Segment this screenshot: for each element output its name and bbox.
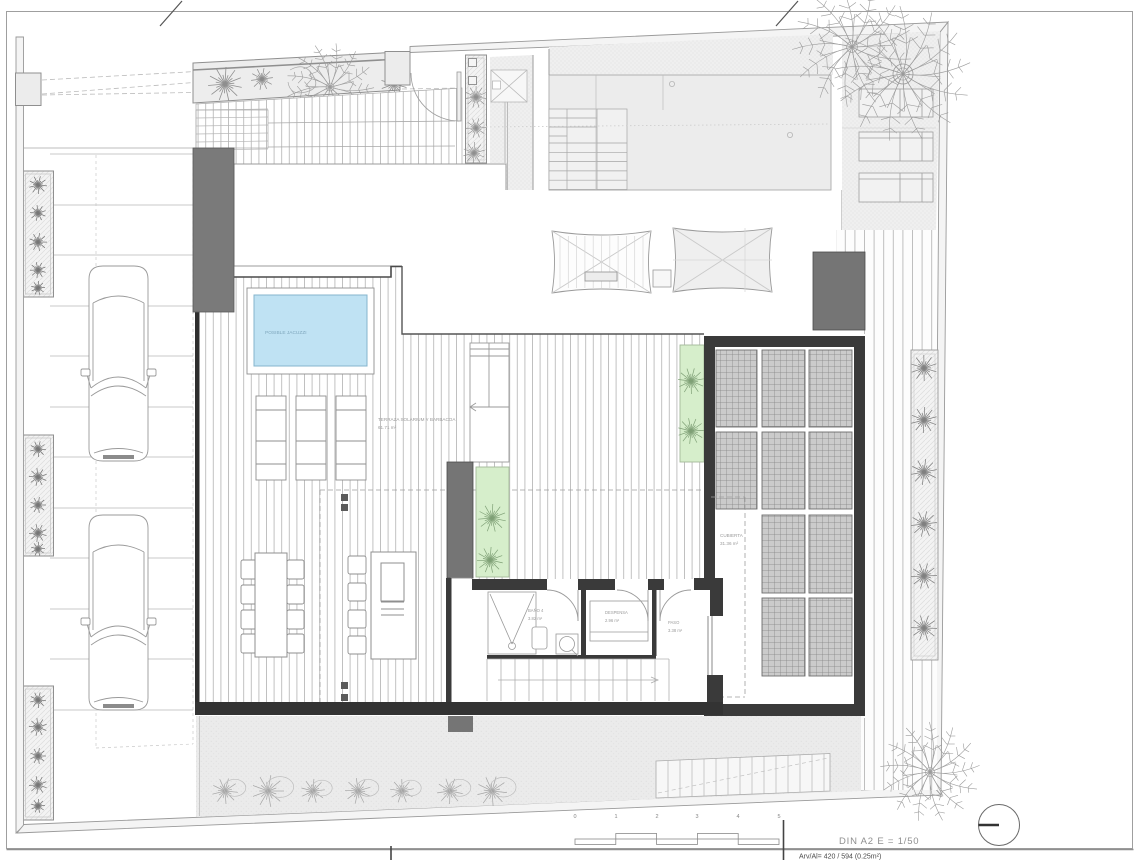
svg-text:POSIBLE JACUZZI: POSIBLE JACUZZI <box>265 330 307 336</box>
svg-text:Arv/Al= 420 / 594 (0.25m²): Arv/Al= 420 / 594 (0.25m²) <box>799 854 881 860</box>
svg-text:2: 2 <box>655 814 658 820</box>
svg-text:1: 1 <box>614 814 617 820</box>
svg-text:3.82 m²: 3.82 m² <box>528 616 543 621</box>
svg-text:TERRAZA SOLARIUM Y BARBACOA: TERRAZA SOLARIUM Y BARBACOA <box>378 417 456 422</box>
svg-text:DESPENSA: DESPENSA <box>605 610 628 615</box>
svg-text:3: 3 <box>695 814 698 820</box>
svg-text:0: 0 <box>573 814 576 820</box>
svg-text:CUBIERTA: CUBIERTA <box>720 533 744 538</box>
svg-text:PASO: PASO <box>668 620 680 625</box>
svg-text:31.36 m²: 31.36 m² <box>720 541 739 546</box>
svg-text:2.96 m²: 2.96 m² <box>605 618 620 623</box>
svg-text:BAÑO 4: BAÑO 4 <box>528 608 544 613</box>
svg-text:DIN A2 E = 1/50: DIN A2 E = 1/50 <box>839 836 919 847</box>
svg-text:5: 5 <box>777 814 780 820</box>
svg-text:3.38 m²: 3.38 m² <box>668 628 683 633</box>
svg-text:61.71 m²: 61.71 m² <box>378 425 397 430</box>
svg-text:4: 4 <box>736 814 739 820</box>
